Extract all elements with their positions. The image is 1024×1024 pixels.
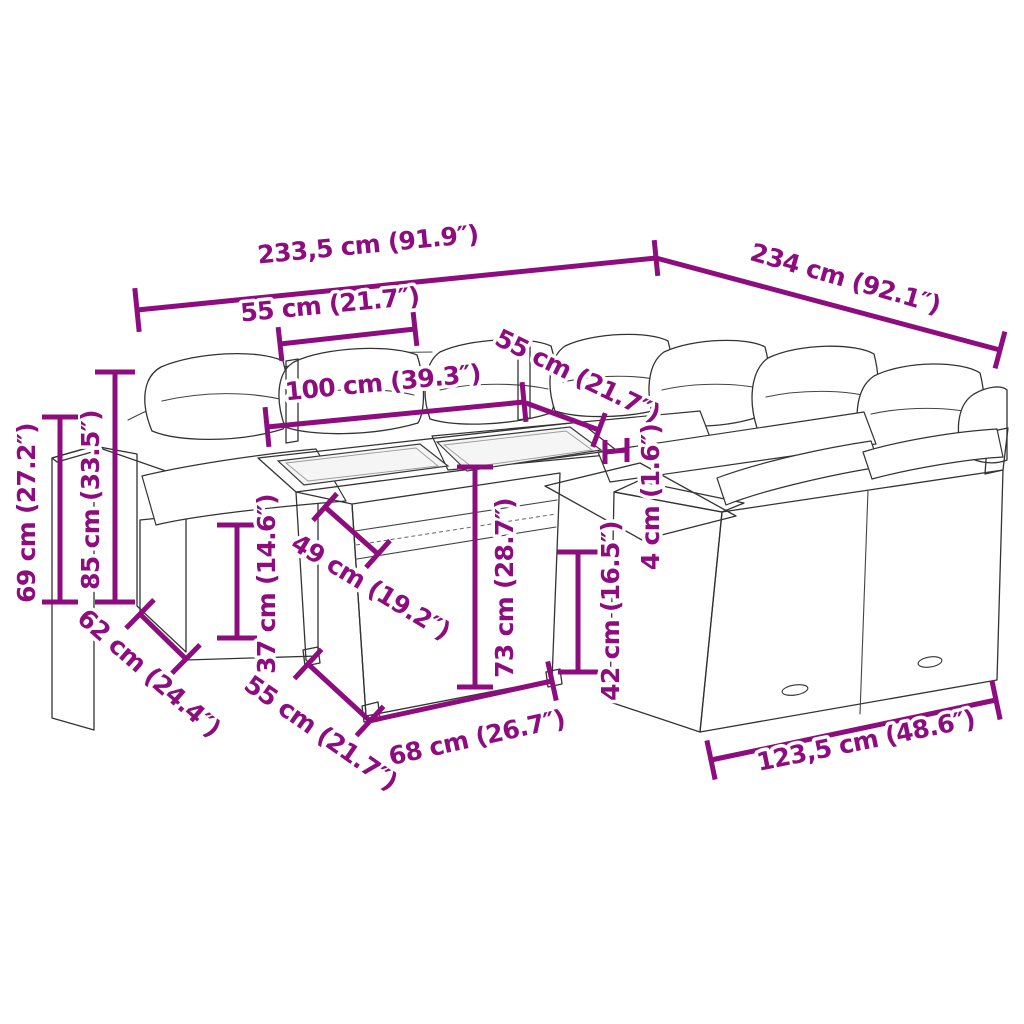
dimension-label-bench-height-42: 42 cm (16.5″) [596,521,625,701]
dimension-line [605,450,627,452]
dimension-label-glass-thick-4: 4 cm (1.6″) [636,424,665,570]
dimension-label-total-height-85: 85 cm (33.5″) [76,410,105,590]
dimension-label-seat-height-37: 37 cm (14.6″) [252,494,281,674]
product-dimension-diagram: 233,5 cm (91.9″)234 cm (92.1″)55 cm (21.… [0,0,1024,1024]
dimension-label-table-height-73: 73 cm (28.7″) [490,498,519,678]
dimension-diagram-page: 233,5 cm (91.9″)234 cm (92.1″)55 cm (21.… [0,0,1024,1024]
dimension-label-arm-height-69: 69 cm (27.2″) [12,423,41,603]
back-pillow [649,340,769,426]
